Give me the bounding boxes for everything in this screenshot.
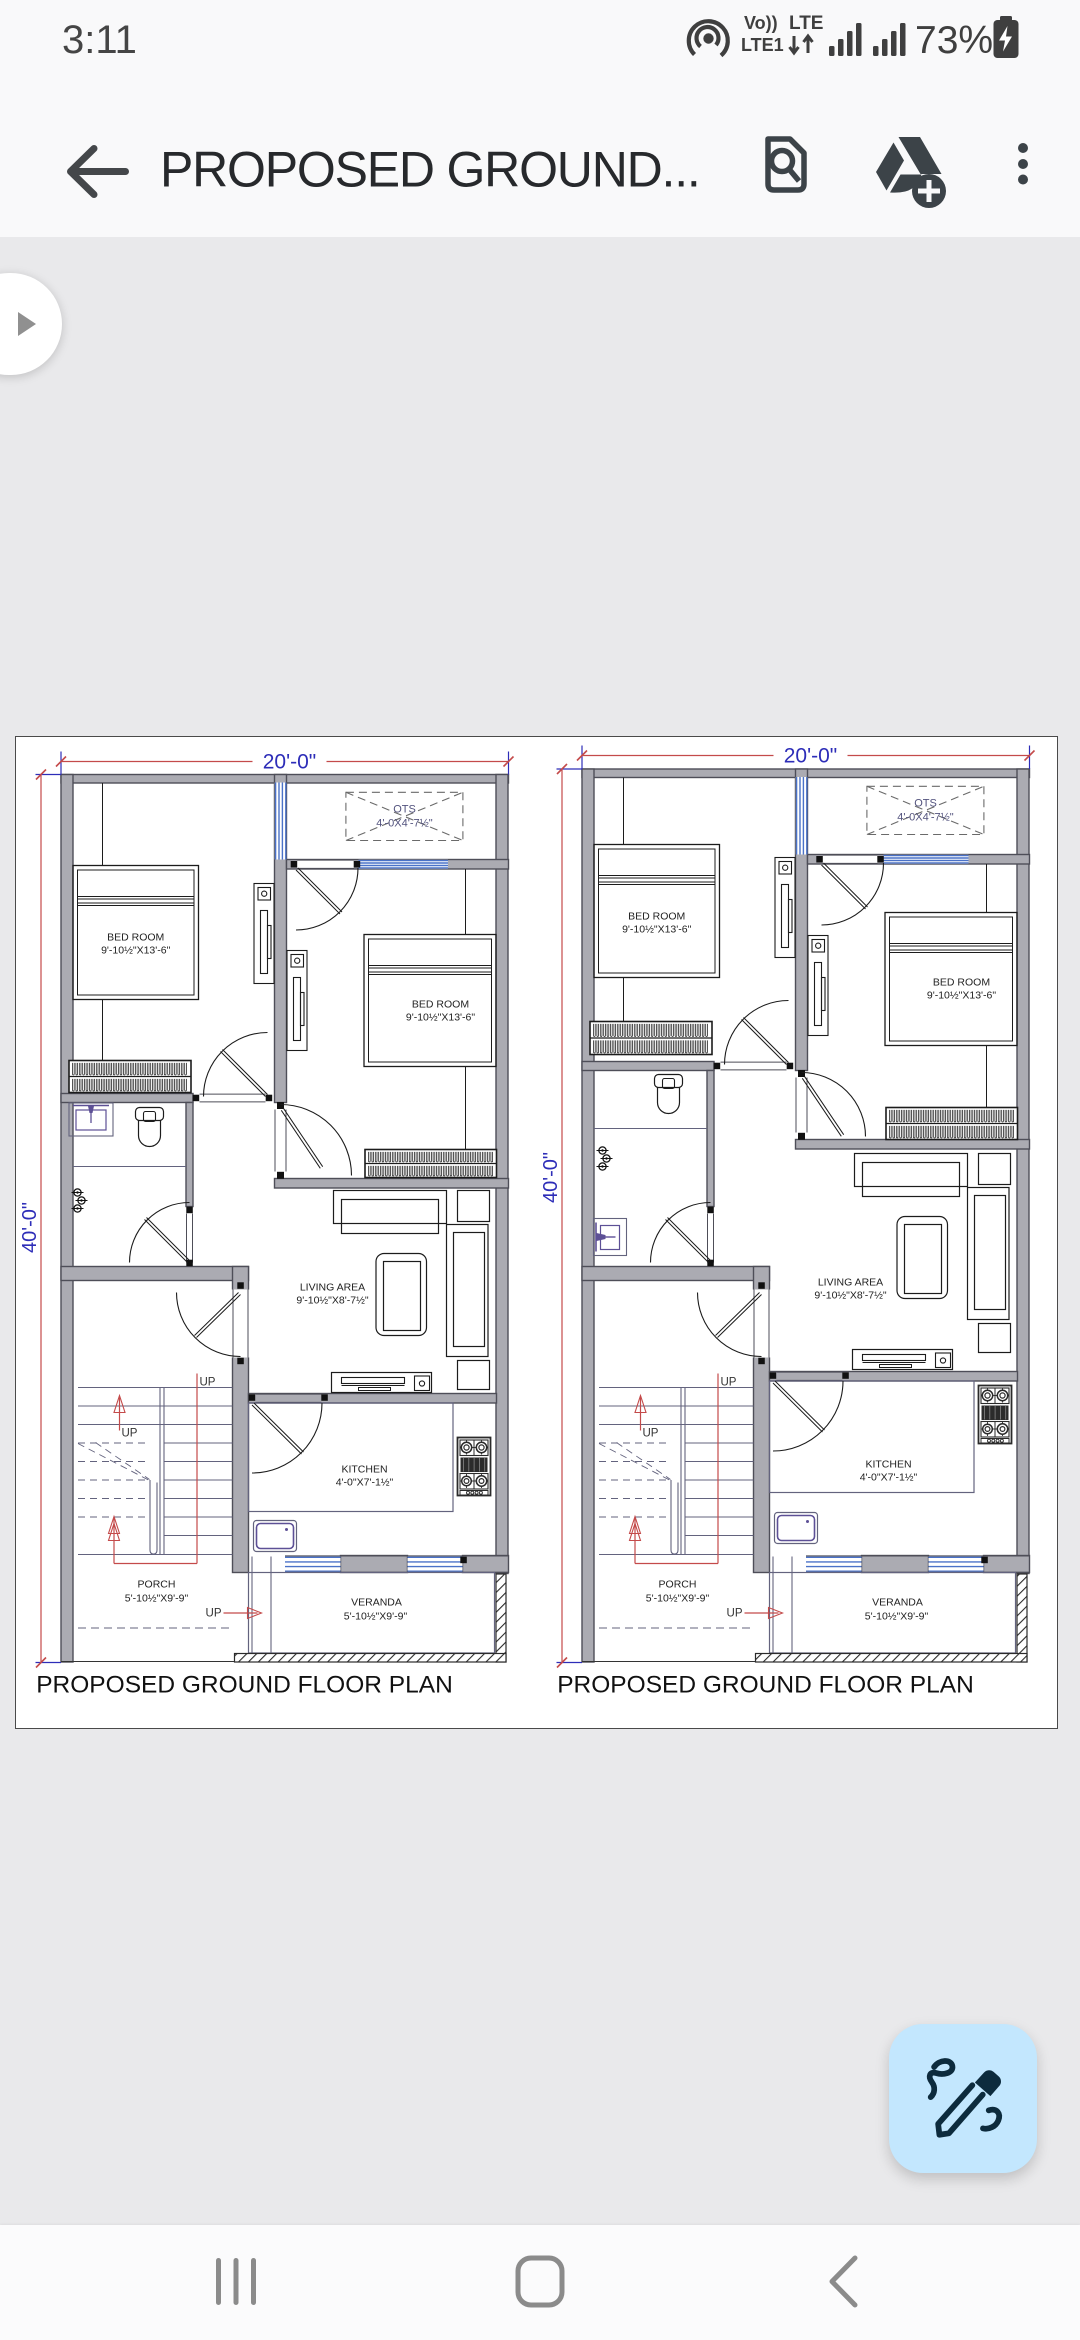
svg-text:5'-10½"X9'-9": 5'-10½"X9'-9" [125,1593,189,1605]
svg-text:BED ROOM: BED ROOM [412,999,469,1011]
svg-text:VERANDA: VERANDA [872,1597,923,1609]
svg-text:9'-10½"X13'-6": 9'-10½"X13'-6" [927,990,997,1002]
svg-text:40'-0": 40'-0" [540,1152,562,1203]
svg-text:Vo)): Vo)) [744,13,778,33]
svg-text:UP: UP [206,1608,222,1620]
svg-text:LTE: LTE [789,13,823,34]
svg-text:9'-10½"X13'-6": 9'-10½"X13'-6" [406,1012,476,1024]
svg-text:UP: UP [200,1377,216,1389]
svg-text:9'-10½"X8'-7½": 9'-10½"X8'-7½" [296,1295,368,1307]
svg-text:4'-0X4'-7½": 4'-0X4'-7½" [897,812,954,824]
svg-text:BED ROOM: BED ROOM [628,911,685,923]
svg-text:4'-0"X7'-1½": 4'-0"X7'-1½" [860,1472,918,1484]
svg-text:5'-10½"X9'-9": 5'-10½"X9'-9" [646,1593,710,1605]
svg-text:PROPOSED GROUND FLOOR PLAN: PROPOSED GROUND FLOOR PLAN [557,1672,974,1699]
svg-text:LIVING AREA: LIVING AREA [300,1282,365,1294]
svg-text:LTE1: LTE1 [741,35,784,55]
svg-text:20'-0": 20'-0" [263,751,317,774]
svg-text:PROPOSED GROUND...: PROPOSED GROUND... [160,142,700,198]
svg-text:LIVING AREA: LIVING AREA [818,1277,883,1289]
svg-text:PORCH: PORCH [659,1579,697,1591]
svg-text:PORCH: PORCH [138,1579,176,1591]
svg-text:5'-10½"X9'-9": 5'-10½"X9'-9" [344,1611,408,1623]
svg-text:PROPOSED GROUND FLOOR PLAN: PROPOSED GROUND FLOOR PLAN [36,1672,453,1699]
svg-text:40'-0": 40'-0" [19,1202,41,1253]
svg-text:UP: UP [643,1428,659,1440]
svg-text:20'-0": 20'-0" [784,745,838,768]
svg-text:UP: UP [727,1608,743,1620]
svg-text:5'-10½"X9'-9": 5'-10½"X9'-9" [865,1611,929,1623]
svg-text:3:11: 3:11 [62,18,137,62]
svg-text:KITCHEN: KITCHEN [341,1464,387,1476]
svg-text:BED ROOM: BED ROOM [933,977,990,989]
svg-text:KITCHEN: KITCHEN [865,1459,911,1471]
svg-text:VERANDA: VERANDA [351,1597,402,1609]
svg-text:9'-10½"X13'-6": 9'-10½"X13'-6" [101,945,171,957]
svg-text:9'-10½"X13'-6": 9'-10½"X13'-6" [622,924,692,936]
svg-text:4'-0"X7'-1½": 4'-0"X7'-1½" [336,1477,394,1489]
svg-text:UP: UP [122,1428,138,1440]
svg-text:9'-10½"X8'-7½": 9'-10½"X8'-7½" [814,1290,886,1302]
svg-text:OTS: OTS [914,798,937,810]
svg-text:OTS: OTS [393,804,416,816]
svg-text:73%: 73% [915,19,993,62]
svg-text:UP: UP [721,1377,737,1389]
svg-text:4'-0X4'-7½": 4'-0X4'-7½" [376,818,433,830]
svg-text:BED ROOM: BED ROOM [107,932,164,944]
